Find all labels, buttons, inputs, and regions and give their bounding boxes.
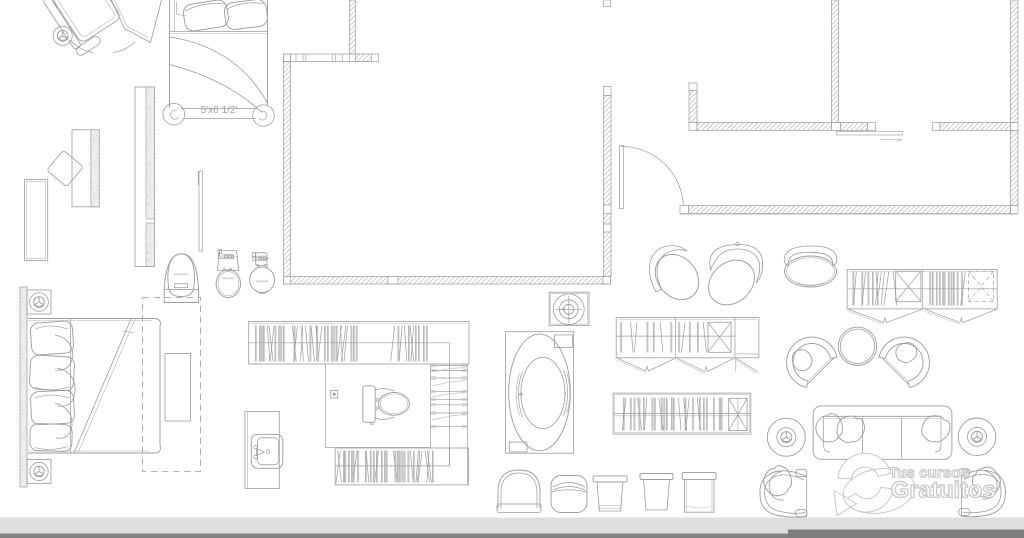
svg-text:5'x6 1/2': 5'x6 1/2': [201, 105, 238, 116]
svg-text:Gratuitos: Gratuitos: [891, 477, 995, 503]
